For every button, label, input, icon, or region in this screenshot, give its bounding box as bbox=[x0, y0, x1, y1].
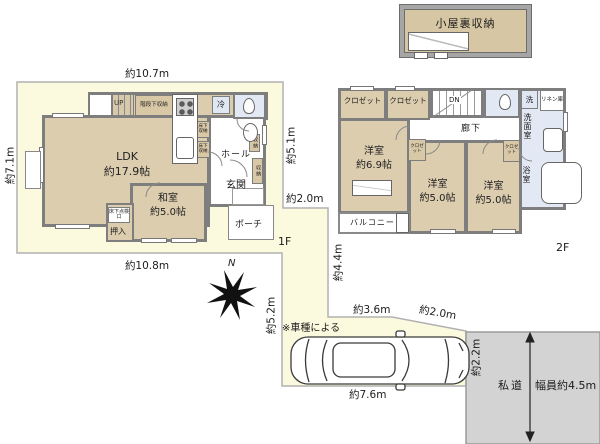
f2-east-room-label: 洋室 約5.0帖 bbox=[465, 180, 522, 207]
f1-under-stair-storage: 階段下収納 bbox=[135, 95, 173, 116]
window bbox=[55, 224, 90, 229]
f2-center-room-label: 洋室 約5.0帖 bbox=[408, 178, 467, 205]
f1-fridge: 冷 bbox=[212, 96, 230, 114]
f2-toilet-icon bbox=[499, 94, 511, 110]
road-width-arrow bbox=[526, 333, 534, 441]
f2-linen-closet: リネン庫 bbox=[540, 90, 564, 111]
f1-ldk-name: LDK bbox=[82, 150, 172, 165]
site-dim-drive-bottom: 約7.6m bbox=[349, 387, 386, 402]
window bbox=[492, 229, 516, 234]
floorplan-canvas: 小屋裏収納 UP 階段下収納 冷 床下収納 床下収納 収納 収納 床下点検口 L… bbox=[0, 0, 600, 444]
window bbox=[430, 229, 456, 234]
f1-dim-gap: 約2.0m bbox=[286, 191, 323, 206]
f2-window-seat bbox=[352, 180, 392, 196]
f1-toilet-icon bbox=[243, 98, 255, 114]
f2-east-room-name: 洋室 bbox=[465, 180, 522, 194]
f2-west-room-size: 約6.9帖 bbox=[338, 159, 410, 173]
f2-washstand-icon bbox=[543, 128, 563, 152]
f1-floor-label: 1F bbox=[278, 235, 291, 248]
f1-dim-right: 約5.1m bbox=[284, 116, 299, 176]
f1-dim-bottom: 約10.8m bbox=[117, 258, 177, 273]
site-dim-road-edge: 約2.2m bbox=[469, 328, 484, 388]
f2-west-room-label: 洋室 約6.9帖 bbox=[338, 145, 410, 172]
site-dim-drive-top: 約3.6m bbox=[353, 302, 390, 317]
attic-ladder-hatch bbox=[408, 32, 469, 51]
window bbox=[171, 238, 197, 243]
f1-dim-left: 約7.1m bbox=[3, 136, 18, 196]
f2-east-room-size: 約5.0帖 bbox=[465, 194, 522, 208]
car-icon bbox=[291, 331, 469, 390]
f1-oshiire-label: 押入 bbox=[110, 226, 126, 237]
f1-floor-storage-1: 床下収納 bbox=[196, 121, 210, 138]
f2-bath-label: 浴室 bbox=[521, 166, 532, 196]
f2-closet-small-1: クロゼット bbox=[408, 139, 426, 161]
f2-closet-small-2: クロゼット bbox=[503, 140, 520, 162]
f1-genkan-label: 玄関 bbox=[226, 176, 246, 191]
f1-washitsu-name: 和室 bbox=[133, 192, 203, 206]
f2-stairs-down-label: DN bbox=[448, 96, 461, 104]
site-dim-drive-diag: 約2.0m bbox=[418, 302, 457, 323]
f2-center-room-name: 洋室 bbox=[408, 178, 467, 192]
f1-porch-label: ポーチ bbox=[234, 217, 263, 230]
f1-washbasin-icon bbox=[243, 123, 258, 142]
f1-ldk-label: LDK 約17.9帖 bbox=[82, 150, 172, 180]
f1-hall-label: ホール bbox=[221, 147, 251, 160]
f2-balcony-storage-box bbox=[396, 213, 409, 233]
f2-floor-label: 2F bbox=[556, 241, 569, 254]
window bbox=[395, 86, 415, 91]
f1-bay-shutter-box bbox=[25, 151, 41, 189]
f1-stove-icon bbox=[176, 98, 194, 116]
f2-center-room-size: 約5.0帖 bbox=[408, 192, 467, 206]
f1-stairs-up-label: UP bbox=[114, 99, 123, 107]
road-width-label: 幅員約4.5m bbox=[535, 377, 596, 393]
north-label: N bbox=[228, 258, 235, 269]
f1-cabinet-2: 収納 bbox=[252, 158, 263, 184]
f1-washitsu-size: 約5.0帖 bbox=[133, 206, 203, 220]
road-name-label: 私道 bbox=[498, 377, 524, 393]
f2-washer: 洗 bbox=[521, 90, 538, 109]
f2-closet-1-label: クロゼット bbox=[340, 95, 385, 106]
attic-label: 小屋裏収納 bbox=[400, 15, 531, 31]
site-dim-west: 約5.2m bbox=[264, 286, 279, 346]
f2-hallway-label: 廊下 bbox=[461, 121, 481, 134]
f2-closet-2-label: クロゼット bbox=[387, 95, 429, 106]
f2-bathtub-icon bbox=[541, 162, 582, 204]
f1-floor-hatch: 床下点検口 bbox=[108, 207, 130, 223]
window bbox=[141, 238, 167, 243]
attic-vent-tab bbox=[414, 52, 428, 59]
f2-sanitary-label: 洗面室 bbox=[522, 113, 533, 155]
compass-star-icon bbox=[207, 270, 257, 320]
f1-dim-top: 約10.7m bbox=[117, 66, 177, 81]
f1-floor-storage-2: 床下収納 bbox=[196, 141, 210, 158]
window bbox=[52, 113, 84, 118]
window bbox=[563, 112, 568, 132]
site-dim-approach: 約4.4m bbox=[331, 233, 346, 293]
window bbox=[262, 125, 267, 145]
f1-ldk-size: 約17.9帖 bbox=[82, 165, 172, 180]
site-note-car: ※車種による bbox=[282, 319, 340, 334]
f1-sink-icon bbox=[176, 137, 194, 159]
attic-vent-tab bbox=[434, 52, 448, 59]
f1-washitsu-label: 和室 約5.0帖 bbox=[133, 192, 203, 219]
f2-west-room-name: 洋室 bbox=[338, 145, 410, 159]
f2-balcony-label: バルコニー bbox=[350, 217, 395, 228]
window bbox=[350, 86, 374, 91]
